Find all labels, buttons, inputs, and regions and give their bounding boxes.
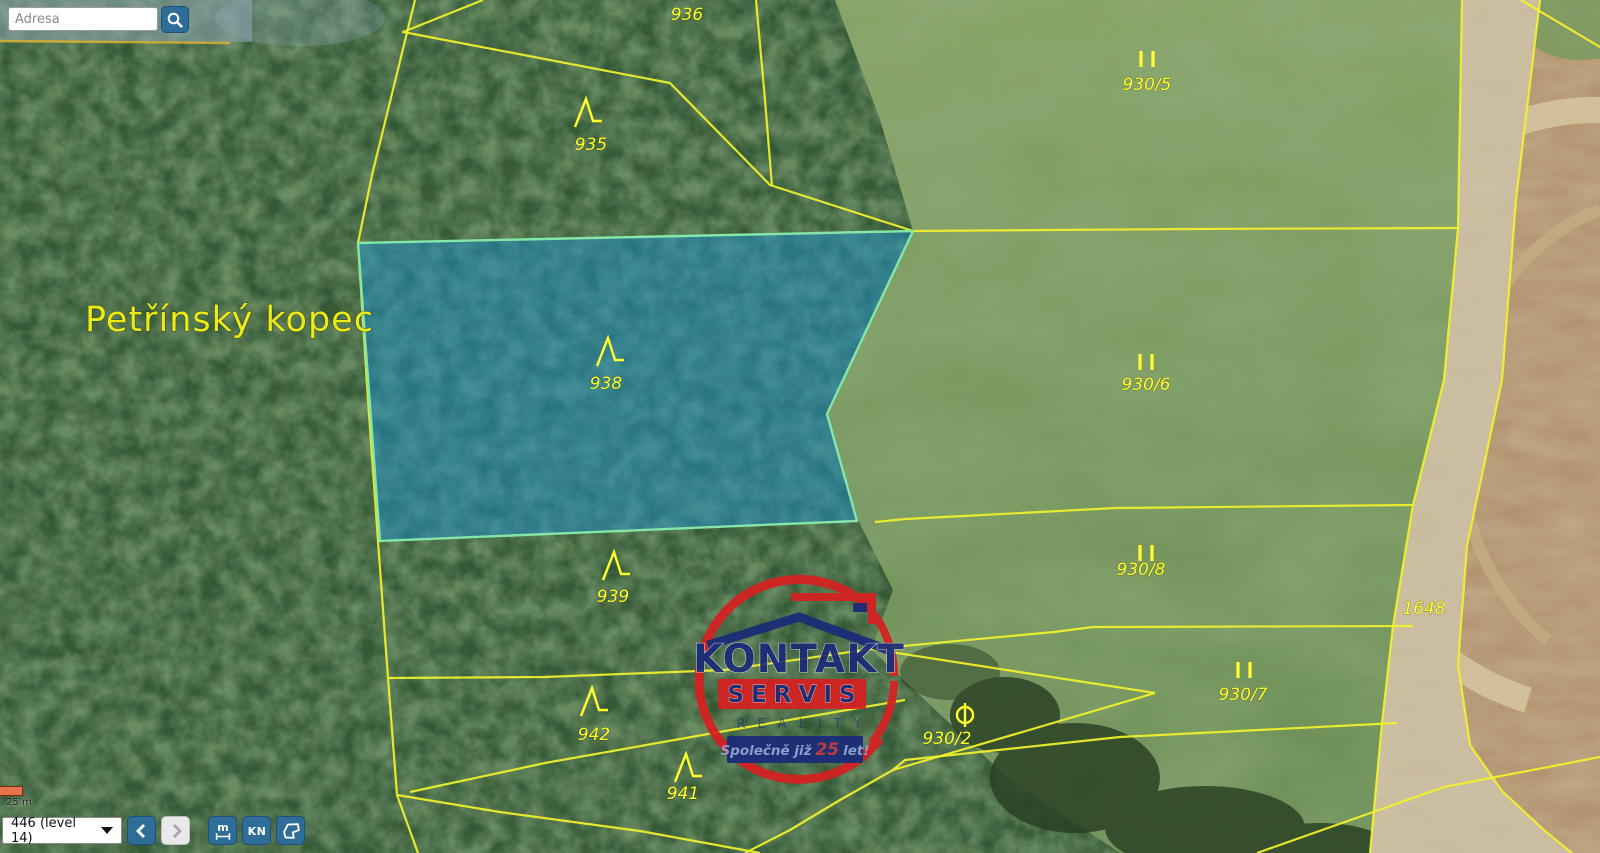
svg-text:m: m	[217, 821, 228, 834]
scale-label: 25 m	[6, 797, 32, 808]
parcel-label-930-8: 930/8	[1117, 560, 1166, 580]
scale-bar	[0, 786, 23, 796]
logo-reality: REALITY	[736, 717, 873, 732]
logo-subtitle: SERVIS	[728, 682, 863, 708]
search-icon	[166, 11, 184, 29]
parcel-label-939: 939	[597, 587, 629, 607]
logo-tagline: Společně již25let!	[720, 740, 869, 760]
level-select[interactable]: 446 (level 14)	[2, 817, 122, 844]
parcel-label-930-2: 930/2	[923, 729, 972, 749]
search-bar	[8, 7, 189, 33]
kn-icon: KN	[246, 820, 268, 842]
bottom-toolbar: 446 (level 14) m KN	[2, 816, 305, 845]
scale-widget: 25 m	[0, 786, 32, 808]
chevron-left-icon	[133, 822, 151, 840]
parcel-label-941: 941	[667, 784, 699, 804]
logo-title: KONTAKT	[693, 637, 905, 682]
parcel-label-1648: 1648	[1402, 599, 1445, 619]
search-input[interactable]	[8, 7, 158, 31]
measure-icon: m	[212, 820, 234, 842]
history-back-button[interactable]	[127, 816, 156, 845]
parcel-label-938: 938	[590, 374, 623, 394]
polygon-select-button[interactable]	[276, 816, 305, 845]
level-select-value: 446 (level 14)	[11, 816, 101, 846]
chevron-right-icon	[167, 822, 185, 840]
search-button[interactable]	[161, 6, 189, 33]
chevron-down-icon	[101, 827, 113, 834]
highlighted-parcel-938[interactable]	[358, 231, 913, 541]
svg-text:KN: KN	[247, 825, 266, 838]
parcel-label-930-5: 930/5	[1123, 75, 1172, 95]
parcel-label-942: 942	[578, 725, 610, 745]
cadastral-map-viewer: Petřínský kopec 936935938939942941930/59…	[0, 0, 1600, 853]
kn-layer-button[interactable]: KN	[242, 816, 271, 845]
polygon-icon	[280, 820, 302, 842]
measure-tool-button[interactable]: m	[208, 816, 237, 845]
parcel-label-930-6: 930/6	[1122, 375, 1171, 395]
parcel-label-935: 935	[575, 135, 607, 155]
parcel-label-936: 936	[671, 5, 704, 25]
history-forward-button[interactable]	[161, 816, 190, 845]
parcel-label-930-7: 930/7	[1219, 685, 1268, 705]
map-canvas[interactable]: Petřínský kopec 936935938939942941930/59…	[0, 0, 1600, 853]
place-label: Petřínský kopec	[85, 300, 374, 340]
